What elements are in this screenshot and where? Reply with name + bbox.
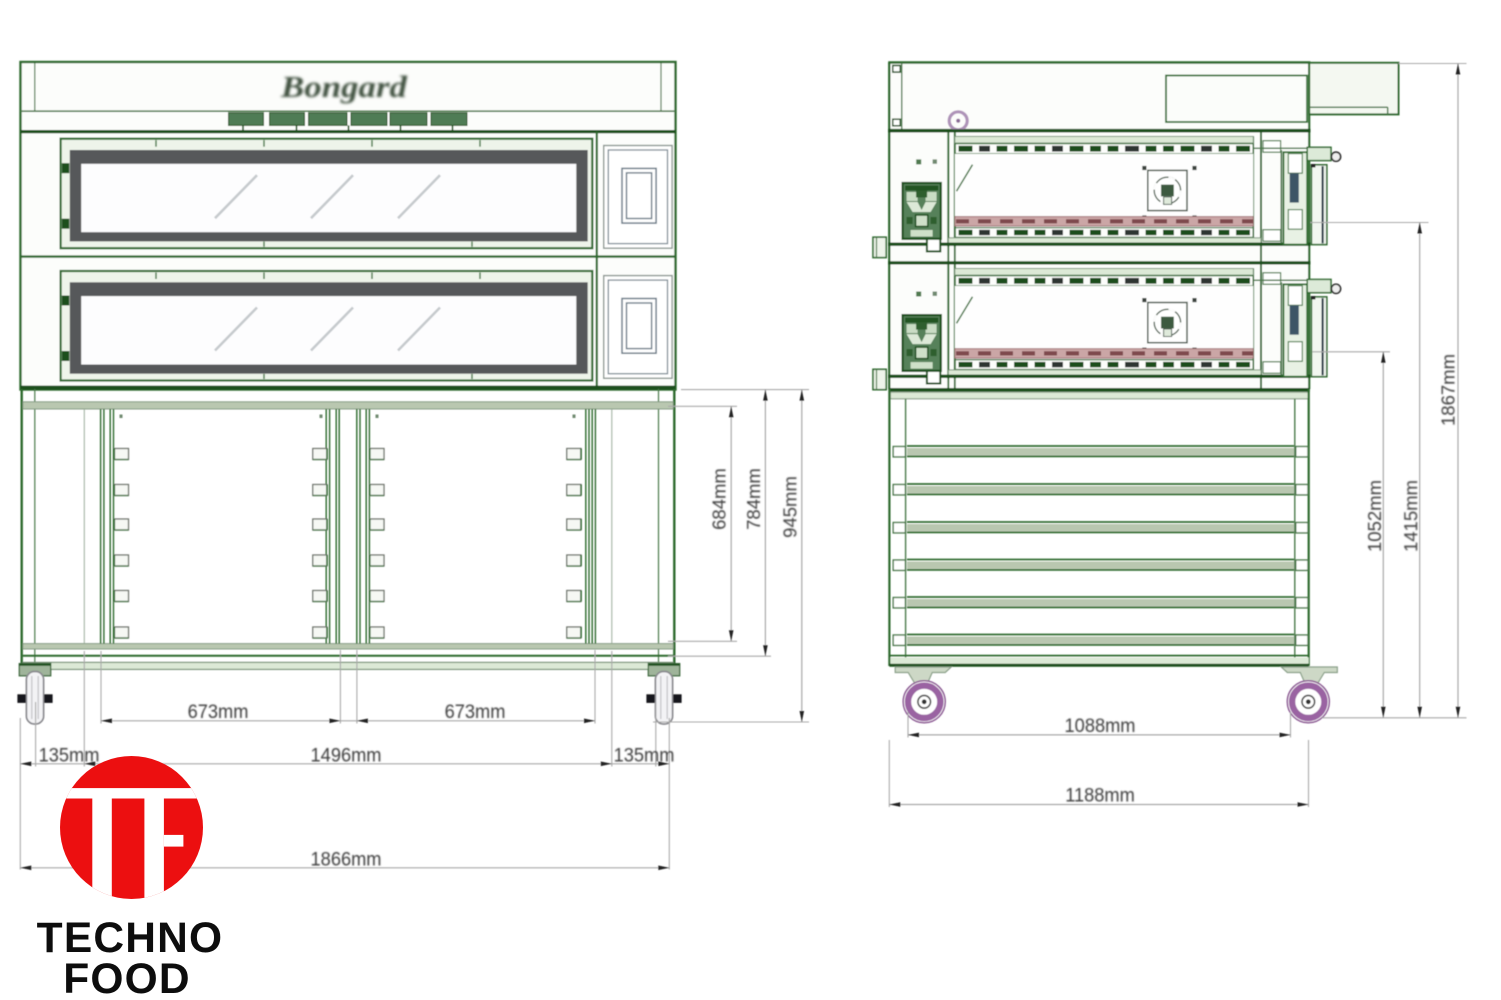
svg-text:FOOD: FOOD — [63, 956, 191, 1000]
svg-text:Bongard: Bongard — [280, 69, 408, 104]
svg-text:1088mm: 1088mm — [1065, 715, 1136, 737]
svg-text:1415mm: 1415mm — [1400, 480, 1421, 552]
svg-text:673mm: 673mm — [188, 701, 249, 723]
svg-text:135mm: 135mm — [614, 744, 675, 766]
svg-text:684mm: 684mm — [709, 468, 730, 530]
svg-text:945mm: 945mm — [779, 476, 800, 538]
svg-text:1052mm: 1052mm — [1364, 480, 1385, 552]
svg-text:1866mm: 1866mm — [311, 848, 382, 870]
svg-text:1188mm: 1188mm — [1065, 784, 1135, 806]
svg-text:135mm: 135mm — [39, 744, 100, 766]
svg-text:1496mm: 1496mm — [311, 744, 382, 766]
svg-text:TECHNO: TECHNO — [37, 915, 224, 962]
svg-text:784mm: 784mm — [743, 468, 764, 530]
svg-text:673mm: 673mm — [445, 701, 506, 723]
svg-text:1867mm: 1867mm — [1438, 354, 1459, 426]
